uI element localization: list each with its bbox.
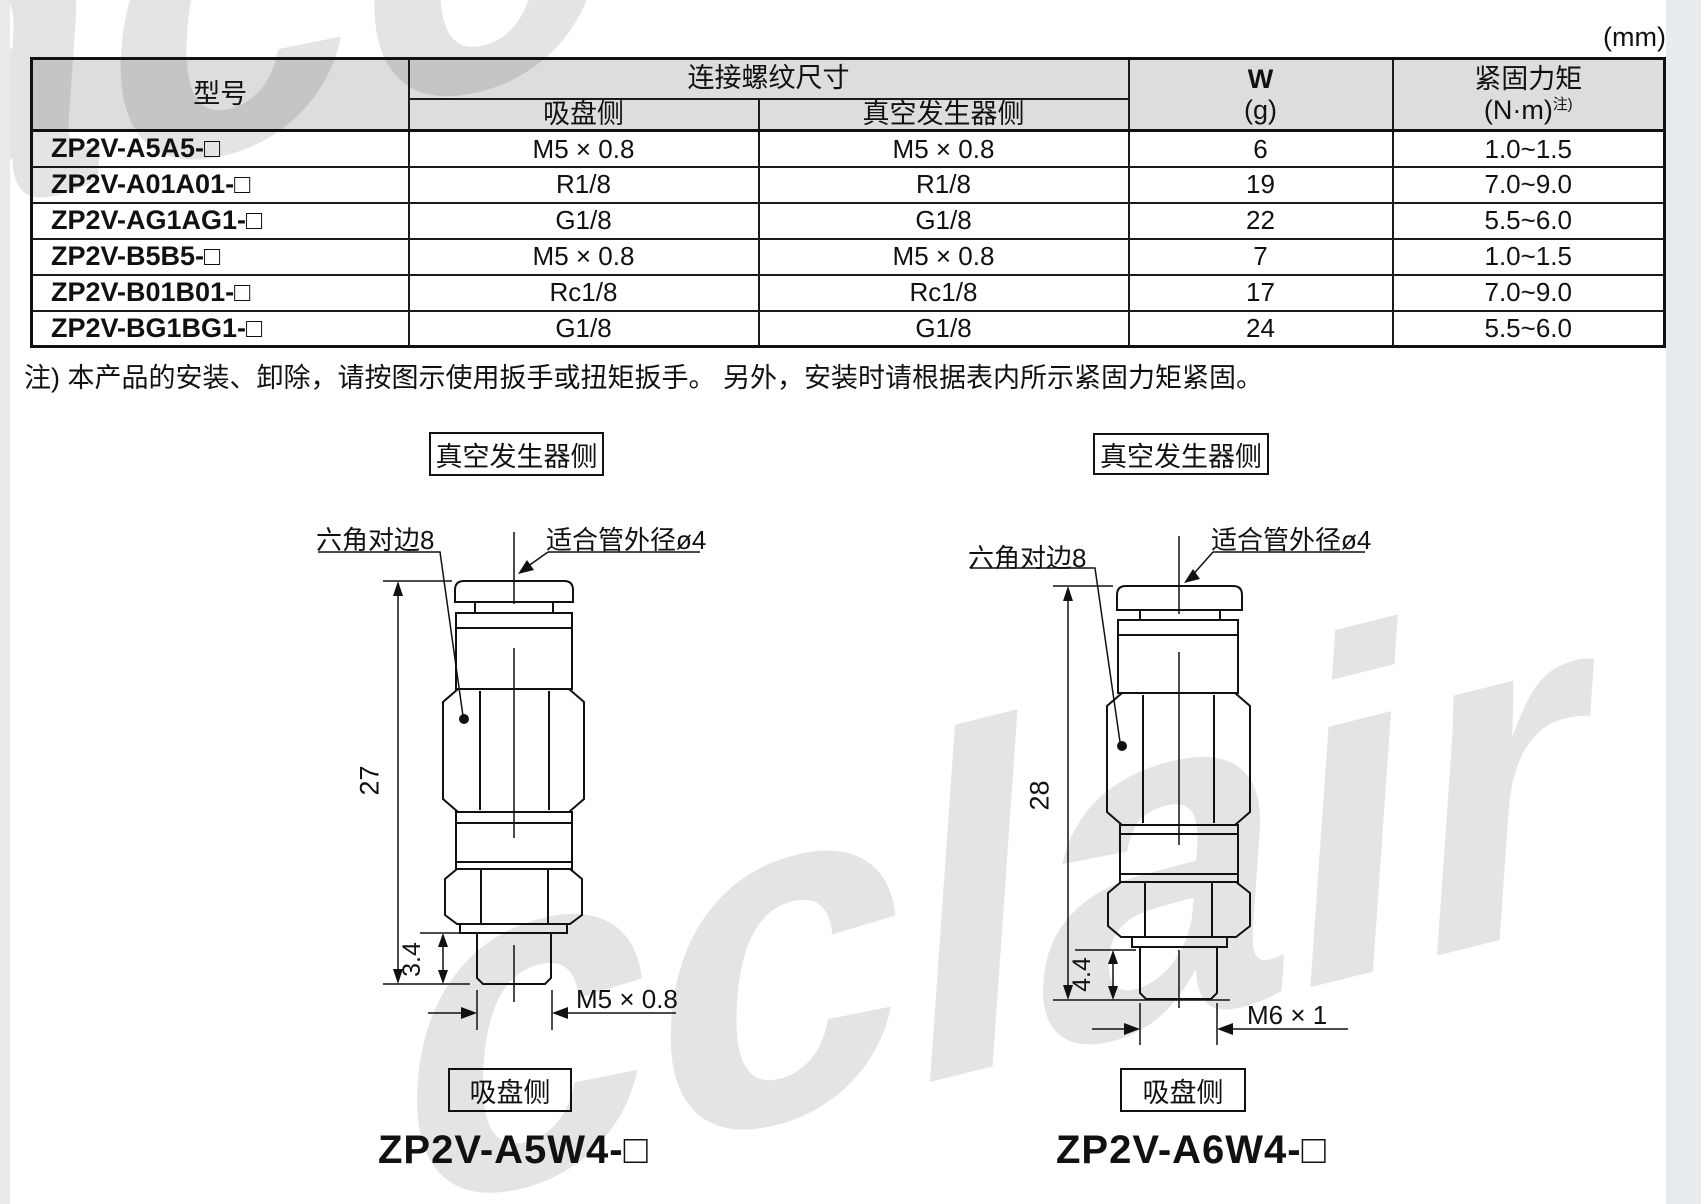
right-pad-side-label: 吸盘侧: [1120, 1068, 1246, 1112]
table-row: ZP2V-BG1BG1-□G1/8G1/8245.5~6.0: [32, 311, 1665, 347]
unit-label: (mm): [1500, 22, 1666, 53]
generator-side-cell: R1/8: [759, 167, 1129, 203]
model-cell: ZP2V-A5A5-□: [32, 131, 409, 167]
right-tube-od-label: 适合管外径ø4: [1211, 520, 1371, 557]
generator-side-cell: Rc1/8: [759, 275, 1129, 311]
spec-table: 型号 连接螺纹尺寸 W (g) 紧固力矩 (N·m)注): [30, 57, 1663, 347]
left-tube-od-label: 适合管外径ø4: [546, 520, 706, 557]
model-cell: ZP2V-BG1BG1-□: [32, 311, 409, 347]
generator-side-cell: G1/8: [759, 311, 1129, 347]
pad-side-cell: G1/8: [409, 311, 759, 347]
torque-header-unit: (N·m)注): [1394, 95, 1664, 126]
torque-cell: 1.0~1.5: [1393, 131, 1665, 167]
left-stud-dimension: 3.4: [398, 942, 427, 977]
generator-side-cell: G1/8: [759, 203, 1129, 239]
col-header-generator-side: 真空发生器侧: [759, 99, 1129, 131]
torque-cell: 1.0~1.5: [1393, 239, 1665, 275]
right-thread-label: M6 × 1: [1247, 1000, 1327, 1031]
weight-header-symbol: W: [1130, 64, 1392, 95]
generator-side-cell: M5 × 0.8: [759, 131, 1129, 167]
table-row: ZP2V-A01A01-□R1/8R1/8197.0~9.0: [32, 167, 1665, 203]
col-header-thread-group: 连接螺纹尺寸: [409, 59, 1129, 99]
torque-note-ref: 注): [1553, 97, 1573, 113]
weight-header-unit: (g): [1130, 95, 1392, 126]
pad-side-cell: M5 × 0.8: [409, 131, 759, 167]
page-right-margin: [1666, 0, 1701, 1204]
right-stud-dimension: 4.4: [1068, 957, 1097, 992]
weight-cell: 7: [1129, 239, 1393, 275]
table-row: ZP2V-AG1AG1-□G1/8G1/8225.5~6.0: [32, 203, 1665, 239]
torque-cell: 7.0~9.0: [1393, 275, 1665, 311]
right-height-dimension: 28: [1025, 780, 1056, 810]
pad-side-cell: Rc1/8: [409, 275, 759, 311]
torque-cell: 5.5~6.0: [1393, 203, 1665, 239]
pad-side-cell: R1/8: [409, 167, 759, 203]
left-generator-side-label: 真空发生器侧: [429, 432, 604, 476]
pad-side-cell: G1/8: [409, 203, 759, 239]
left-thread-label: M5 × 0.8: [576, 984, 678, 1015]
spec-table-body: ZP2V-A5A5-□M5 × 0.8M5 × 0.861.0~1.5ZP2V-…: [32, 131, 1665, 347]
right-hex-flats-label: 六角对边8: [968, 538, 1086, 575]
col-header-torque: 紧固力矩 (N·m)注): [1393, 59, 1665, 131]
table-row: ZP2V-B5B5-□M5 × 0.8M5 × 0.871.0~1.5: [32, 239, 1665, 275]
col-header-weight: W (g): [1129, 59, 1393, 131]
model-cell: ZP2V-B5B5-□: [32, 239, 409, 275]
left-pad-side-label: 吸盘侧: [448, 1068, 572, 1112]
weight-cell: 19: [1129, 167, 1393, 203]
model-cell: ZP2V-A01A01-□: [32, 167, 409, 203]
torque-cell: 5.5~6.0: [1393, 311, 1665, 347]
pad-side-cell: M5 × 0.8: [409, 239, 759, 275]
left-hex-flats-label: 六角对边8: [316, 520, 434, 557]
generator-side-cell: M5 × 0.8: [759, 239, 1129, 275]
model-cell: ZP2V-AG1AG1-□: [32, 203, 409, 239]
right-model-number: ZP2V-A6W4-□: [1056, 1128, 1316, 1173]
weight-cell: 17: [1129, 275, 1393, 311]
torque-header-title: 紧固力矩: [1394, 64, 1664, 95]
footnote: 注) 本产品的安装、卸除，请按图示使用扳手或扭矩扳手。 另外，安装时请根据表内所…: [24, 356, 1624, 395]
right-generator-side-label: 真空发生器侧: [1093, 433, 1269, 475]
left-height-dimension: 27: [355, 765, 386, 795]
table-row: ZP2V-B01B01-□Rc1/8Rc1/8177.0~9.0: [32, 275, 1665, 311]
page-left-margin: [0, 0, 10, 1204]
catalog-page: acc cclair (mm) 型号 连接螺纹尺寸 W (g): [0, 0, 1701, 1204]
table-row: ZP2V-A5A5-□M5 × 0.8M5 × 0.861.0~1.5: [32, 131, 1665, 167]
left-model-number: ZP2V-A5W4-□: [378, 1128, 638, 1173]
weight-cell: 24: [1129, 311, 1393, 347]
weight-cell: 22: [1129, 203, 1393, 239]
col-header-model: 型号: [32, 59, 409, 131]
weight-cell: 6: [1129, 131, 1393, 167]
col-header-pad-side: 吸盘侧: [409, 99, 759, 131]
torque-cell: 7.0~9.0: [1393, 167, 1665, 203]
model-cell: ZP2V-B01B01-□: [32, 275, 409, 311]
